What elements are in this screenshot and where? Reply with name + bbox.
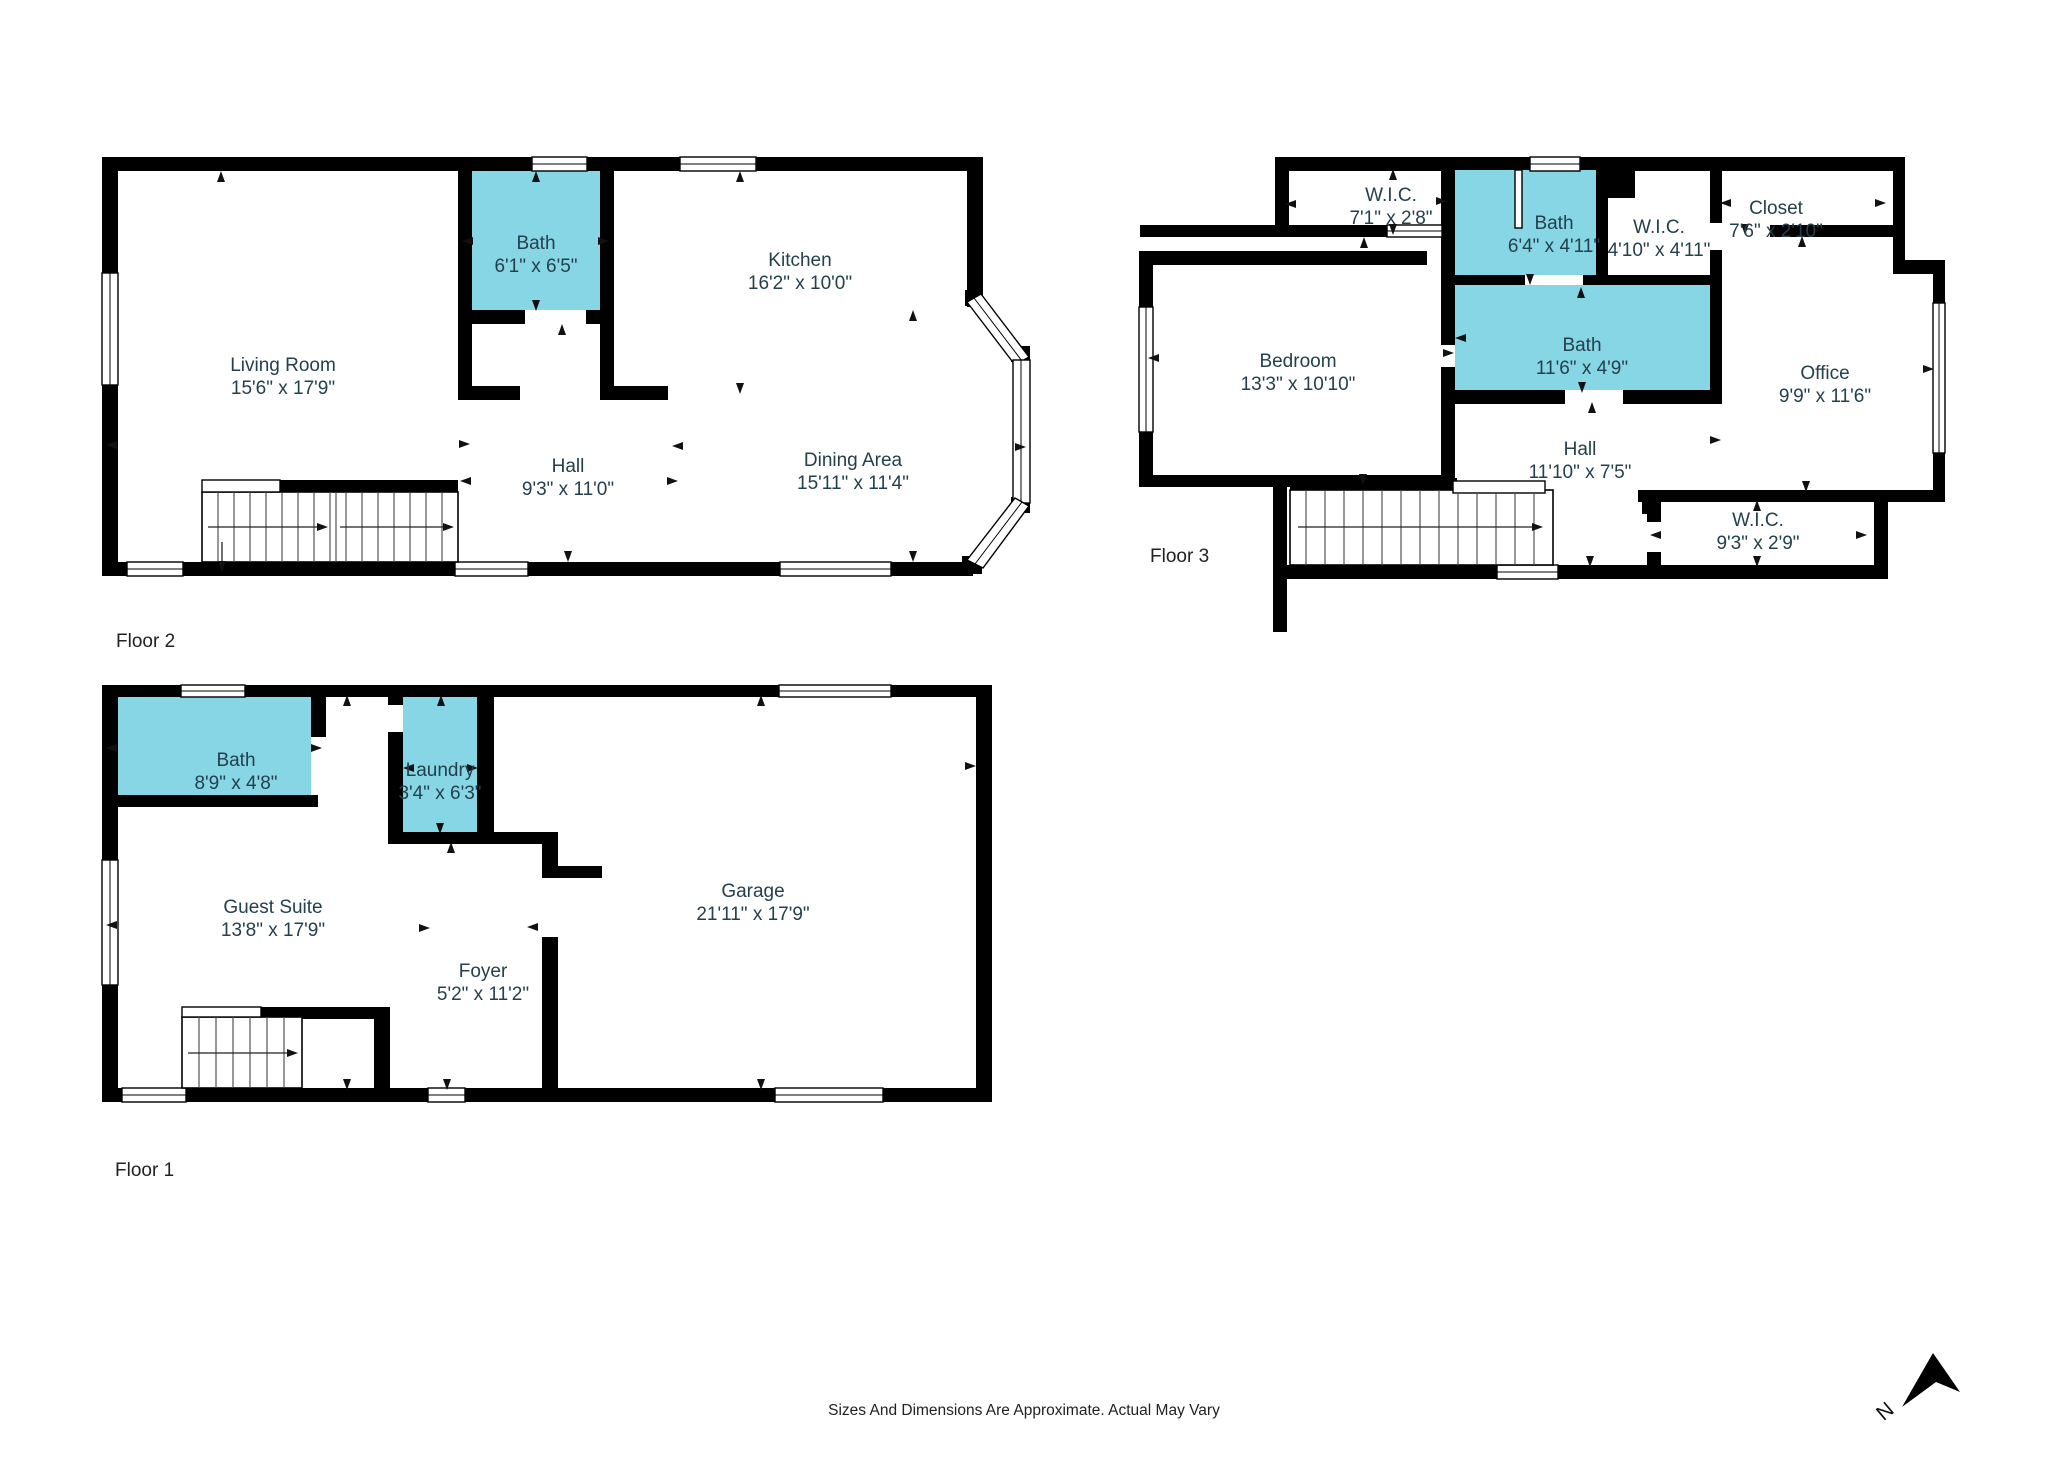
floor2-stairs [202, 480, 458, 572]
room-label-garage: Garage 21'11" x 17'9" [696, 880, 809, 926]
room-label-kitchen: Kitchen 16'2" x 10'0" [748, 249, 852, 295]
room-label-bedroom-f3: Bedroom 13'3" x 10'10" [1241, 350, 1356, 396]
room-label-hall-f3: Hall 11'10" x 7'5" [1529, 438, 1632, 484]
room-label-office-f3: Office 9'9" x 11'6" [1779, 362, 1871, 408]
room-label-wic-1-f3: W.I.C. 7'1" x 2'8" [1349, 184, 1432, 230]
floor3-label: Floor 3 [1150, 546, 1209, 568]
floor3-stairs [1290, 478, 1553, 565]
room-label-closet-f3: Closet 7'6" x 2'10" [1729, 197, 1823, 243]
floorplan-canvas: Living Room 15'6" x 17'9" Bath 6'1" x 6'… [0, 0, 2048, 1463]
floor1-label: Floor 1 [115, 1160, 174, 1182]
room-label-guest-suite: Guest Suite 13'8" x 17'9" [221, 896, 325, 942]
room-label-hall-f2: Hall 9'3" x 11'0" [522, 455, 614, 501]
room-label-living-room: Living Room 15'6" x 17'9" [230, 354, 336, 400]
room-label-foyer: Foyer 5'2" x 11'2" [437, 960, 529, 1006]
room-label-wic-3-f3: W.I.C. 9'3" x 2'9" [1716, 509, 1799, 555]
floor1-plan [102, 685, 992, 1102]
room-label-bath-f1: Bath 8'9" x 4'8" [194, 749, 277, 795]
room-label-dining-area: Dining Area 15'11" x 11'4" [797, 449, 909, 495]
compass-arrow-icon [1902, 1353, 1960, 1407]
room-label-laundry-f1: Laundry 3'4" x 6'3" [398, 759, 481, 805]
room-label-wic-2-f3: W.I.C. 4'10" x 4'11" [1608, 216, 1711, 262]
disclaimer-text: Sizes And Dimensions Are Approximate. Ac… [0, 1402, 2048, 1420]
floor1-stairs [182, 1007, 302, 1088]
room-label-bath-small-f3: Bath 6'4" x 4'11" [1508, 212, 1600, 258]
room-label-bath-f2: Bath 6'1" x 6'5" [494, 232, 577, 278]
floor2-label: Floor 2 [116, 631, 175, 653]
room-label-bath-f3: Bath 11'6" x 4'9" [1536, 334, 1628, 380]
